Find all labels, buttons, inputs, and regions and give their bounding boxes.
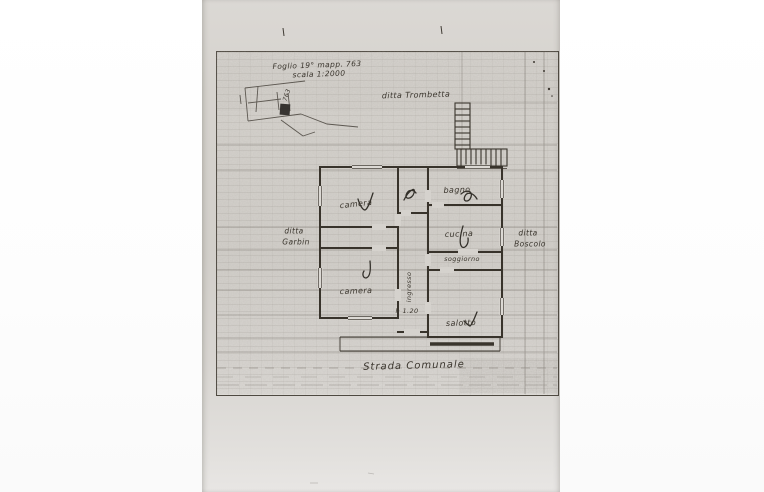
room-label-bathroom: bagno <box>443 185 470 195</box>
drawing-border <box>216 51 559 396</box>
room-label-kitchen: cucina <box>445 229 474 239</box>
room-label-living-room: soggiorno <box>444 255 480 263</box>
neighbor-west-label-line2: Garbin <box>282 238 310 247</box>
height-note: h 1.20 <box>395 307 418 315</box>
room-label-hallway: ingresso <box>405 272 413 303</box>
neighbor-east-label-line1: ditta <box>518 229 537 238</box>
photo-of-scanned-plan: Foglio 19° mapp. 763 scala 1:2000 763 di… <box>0 0 764 492</box>
sheet-scale-note: scala 1:2000 <box>292 69 345 80</box>
room-label-bedroom-bottom: camera <box>340 286 373 296</box>
neighbor-east-label-line2: Boscolo <box>514 240 546 249</box>
neighbor-north-label: ditta Trombetta <box>382 90 451 101</box>
room-label-sitting-room: salotto <box>446 318 476 328</box>
scanned-paper-sheet <box>202 0 560 492</box>
neighbor-west-label-line1: ditta <box>284 227 303 236</box>
